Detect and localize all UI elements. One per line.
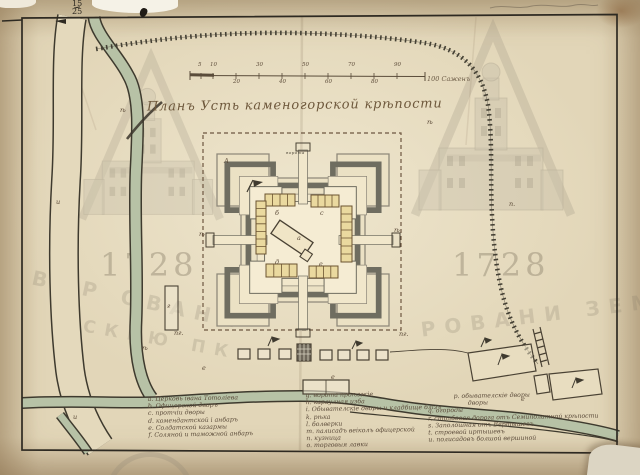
map-letter-label: ѣ bbox=[120, 106, 126, 114]
scale-tick-number: 70 bbox=[348, 62, 355, 68]
map-letter-label: е bbox=[331, 373, 335, 381]
map-letter-label: ѣ bbox=[394, 226, 400, 234]
map-letter-label: г bbox=[167, 302, 170, 310]
map-title: Планъ Усть каменогорской крѣпости bbox=[147, 96, 443, 114]
scale-tick-number: 5 bbox=[198, 62, 202, 68]
bank-path bbox=[390, 349, 468, 353]
map-letter-label: ѣ bbox=[427, 118, 433, 126]
river-west-channel bbox=[64, 17, 100, 447]
map-letter-label: ѣ bbox=[142, 344, 148, 352]
map-letter-label: с bbox=[320, 209, 324, 217]
scale-unit-label: 100 Саженъ bbox=[427, 75, 470, 83]
scale-tick-number: 60 bbox=[325, 79, 332, 85]
watermark-archive-logo-left bbox=[82, 58, 220, 219]
map-sheet-stage: 1728 1728 ВДР ОВАНИ СКРЮ ПК РОВАНИ ЗЕМ bbox=[0, 0, 640, 475]
scale-tick-number: 40 bbox=[279, 79, 286, 85]
settlement-buildings bbox=[238, 344, 388, 394]
scale-bar bbox=[190, 71, 425, 81]
map-letter-label: А bbox=[224, 157, 229, 165]
sheet-number: 15 25 bbox=[72, 0, 82, 15]
map-letter-label: а bbox=[297, 234, 301, 242]
legend-column-left: а. Церковь івана Тотоліеваb. Офицерской … bbox=[148, 394, 253, 439]
map-letter-label: и bbox=[56, 198, 60, 206]
map-letter-label: пг. bbox=[399, 330, 409, 338]
map-letter-label: пг. bbox=[174, 329, 184, 337]
watermark-archive-logo-right bbox=[415, 30, 571, 215]
map-letter-label: б bbox=[275, 209, 279, 217]
scale-tick-number: 20 bbox=[233, 79, 240, 85]
scale-tick-number: 30 bbox=[256, 62, 263, 68]
map-letter-label: е bbox=[319, 260, 323, 268]
map-letter-label: е bbox=[202, 364, 206, 372]
settlement-flags bbox=[268, 337, 362, 349]
scale-tick-number: 80 bbox=[371, 79, 378, 85]
map-letter-label: ѣ bbox=[199, 230, 205, 238]
pencil-inscription bbox=[490, 4, 598, 8]
map-letter-label: п. bbox=[509, 200, 515, 208]
scale-tick-number: 90 bbox=[394, 62, 401, 68]
legend-column-middle: g. ворота проѣзжіеh. караулная избаi. Об… bbox=[306, 390, 443, 450]
gate-label: ворота bbox=[286, 150, 305, 155]
fortress bbox=[206, 143, 400, 337]
legend-column-right: p. обывателскіе дворыдворыq. огородыr. с… bbox=[428, 391, 599, 444]
scale-tick-number: 10 bbox=[210, 62, 217, 68]
map-letter-label: д bbox=[275, 258, 279, 266]
map-letter-label: и bbox=[73, 413, 77, 421]
scale-tick-number: 50 bbox=[302, 62, 309, 68]
